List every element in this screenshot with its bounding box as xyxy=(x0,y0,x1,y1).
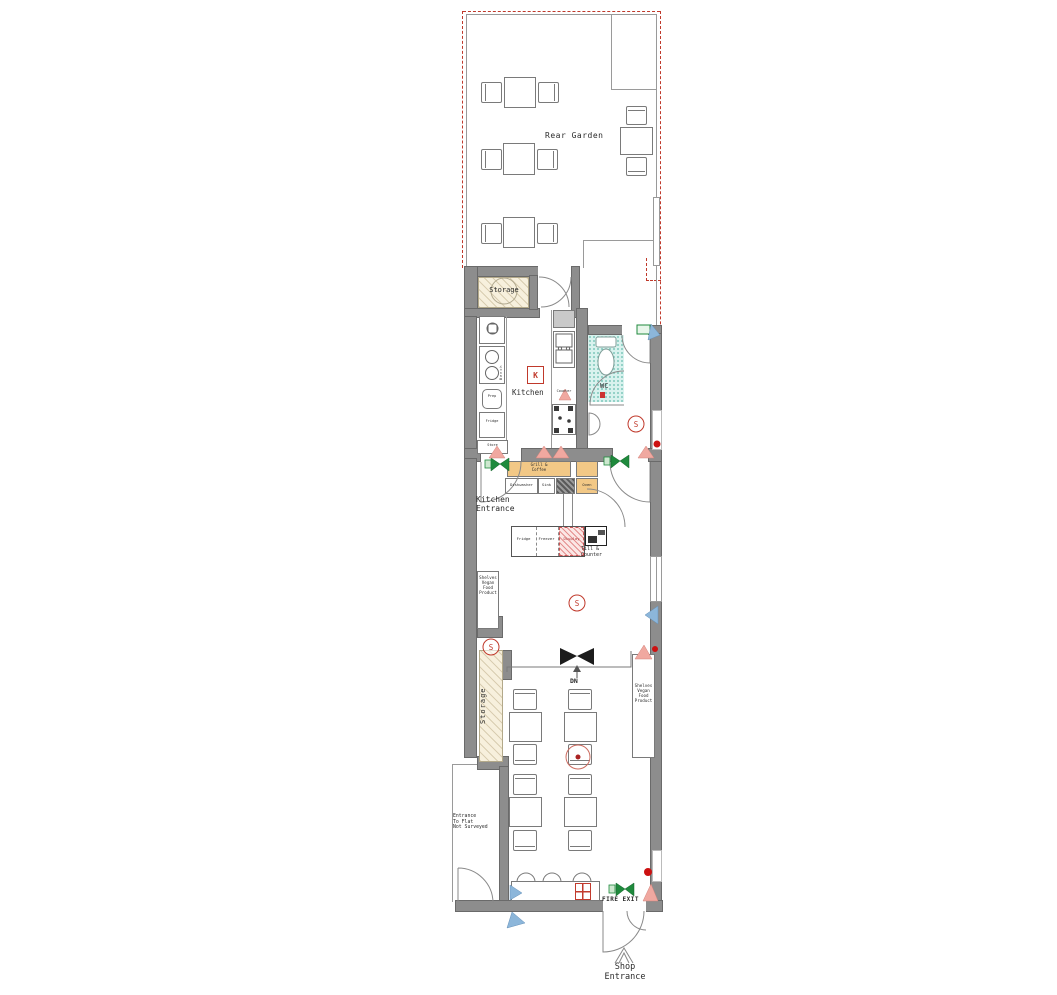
door-opening xyxy=(538,266,571,277)
hob-unit xyxy=(552,404,576,435)
till-counter-label: Till & Counter xyxy=(581,547,602,559)
garden-table xyxy=(503,143,535,175)
garden-chair xyxy=(537,223,558,244)
dining-chair xyxy=(568,689,592,710)
store-label: Store xyxy=(477,443,508,447)
stair-arrow-icon xyxy=(573,665,581,672)
garden-table xyxy=(620,127,653,155)
wall-segment xyxy=(576,308,588,450)
window xyxy=(650,556,662,602)
fire-exit-label: FIRE EXIT xyxy=(602,896,639,903)
cooker-unit xyxy=(479,316,505,344)
site-boundary xyxy=(462,11,463,268)
counter-unit xyxy=(576,461,598,477)
counter-return xyxy=(563,494,573,527)
storage-room-label: Storage xyxy=(479,286,529,294)
garden-chair xyxy=(481,223,502,244)
dining-chair xyxy=(568,774,592,795)
stair-bowtie-icon xyxy=(577,648,594,665)
fridge-unit xyxy=(479,412,505,438)
wc-floor xyxy=(588,335,624,402)
smoke-detector-badge: S xyxy=(569,595,585,611)
wall-segment xyxy=(499,766,509,902)
garden-table xyxy=(504,77,536,108)
smoke-detector-badge: S xyxy=(628,416,644,432)
freezer-label: Freezer xyxy=(536,537,557,541)
dining-chair xyxy=(568,830,592,851)
garden-gate xyxy=(653,197,660,266)
dining-chair xyxy=(513,774,537,795)
wall-recess xyxy=(652,850,662,882)
wall-recess xyxy=(652,410,662,450)
floor-plan: S S S Rear Garden Storage K Kitchen WC K… xyxy=(0,0,1057,995)
garden-chair xyxy=(481,149,502,170)
shed-outline xyxy=(611,89,656,90)
wall-segment xyxy=(521,448,613,462)
bench-label: Bench xyxy=(499,352,507,392)
site-boundary xyxy=(463,11,660,12)
entrance-arrow-icon xyxy=(615,948,633,963)
storage-strip-label: Storage xyxy=(479,650,503,762)
shelves-label: Shelves Vegan Food Product xyxy=(477,576,499,596)
double-sink-unit xyxy=(553,331,575,368)
door-arc-icon xyxy=(539,277,569,307)
dining-table xyxy=(564,797,597,827)
oven-label: Oven xyxy=(577,483,597,487)
door-arc-icon xyxy=(603,911,644,952)
garden-chair xyxy=(626,106,647,125)
prep-unit xyxy=(482,389,502,409)
kitchen-entrance-label: Kitchen Entrance xyxy=(476,495,515,514)
fence-line xyxy=(656,14,657,198)
garden-chair xyxy=(538,82,559,103)
fence-line xyxy=(466,14,467,268)
svg-text:S: S xyxy=(575,599,580,608)
oven-dark-unit xyxy=(556,478,575,494)
prep-label: Prep xyxy=(482,394,502,398)
fence-line xyxy=(466,14,656,15)
flat-wall-line xyxy=(452,764,478,765)
wc-label: WC xyxy=(600,382,608,390)
door-arc-icon xyxy=(622,335,650,363)
wall-segment xyxy=(648,448,662,462)
door-arc-icon xyxy=(541,277,571,307)
fire-point-box-icon xyxy=(609,885,615,893)
display-label: Display xyxy=(559,537,584,541)
dishwasher-label: Dishwasher xyxy=(506,483,537,487)
door-arc-icon xyxy=(587,489,625,527)
fridge-label: Fridge xyxy=(512,537,535,541)
door-arc-icon xyxy=(610,462,650,502)
worktop xyxy=(553,310,575,328)
flat-wall-line xyxy=(452,764,453,902)
counter-divider xyxy=(558,527,559,556)
door-arc-icon xyxy=(627,911,646,930)
door-opening xyxy=(622,325,648,335)
counter-divider xyxy=(536,527,537,556)
door-arc-icon xyxy=(458,868,493,903)
kitchen-label: Kitchen xyxy=(512,389,544,398)
site-boundary xyxy=(646,280,661,281)
fence-line xyxy=(656,266,657,333)
shelves-label: Shelves Vegan Food Product xyxy=(632,684,655,704)
fridge-small-label: Fridge xyxy=(479,419,505,423)
kitchen-tag-letter: K xyxy=(533,371,538,380)
shed-outline xyxy=(611,14,612,90)
dining-table xyxy=(509,712,542,742)
red-grid-icon xyxy=(575,883,591,900)
garden-chair xyxy=(626,157,647,176)
fire-point-icon xyxy=(491,458,500,471)
stairs-dn-label: DN xyxy=(570,678,578,686)
counter-small-label: Counter xyxy=(553,389,575,393)
flat-note-label: Entrance To Flat Not Surveyed xyxy=(453,814,488,831)
garden-step-line xyxy=(583,240,656,241)
dining-chair xyxy=(513,744,537,765)
wall-segment xyxy=(464,316,477,458)
garden-chair xyxy=(537,149,558,170)
dining-chair xyxy=(513,689,537,710)
dining-chair xyxy=(568,744,592,765)
dining-table xyxy=(509,797,542,827)
fire-point-icon xyxy=(625,883,634,896)
basin-icon xyxy=(589,413,600,435)
fire-point-box-icon xyxy=(485,460,491,468)
vent-icon xyxy=(507,912,525,928)
dining-table xyxy=(564,712,597,742)
till-icon xyxy=(588,536,597,543)
rear-garden-label: Rear Garden xyxy=(545,131,603,140)
shelf-unit xyxy=(632,654,655,758)
wall-segment xyxy=(529,275,538,310)
sink-label: Sink xyxy=(538,483,555,487)
garden-step-line xyxy=(583,240,584,268)
dining-chair xyxy=(513,830,537,851)
fire-point-icon xyxy=(620,455,629,468)
garden-table xyxy=(503,217,535,248)
svg-text:S: S xyxy=(634,420,639,429)
till-icon xyxy=(598,530,605,535)
grill-counter-label: Grill & Coffee xyxy=(509,463,569,472)
kitchen-tag: K xyxy=(527,366,544,384)
fire-point-icon xyxy=(616,883,625,896)
site-boundary xyxy=(646,258,647,281)
stair-guard-line xyxy=(507,651,631,672)
stair-bowtie-icon xyxy=(560,648,577,665)
garden-chair xyxy=(481,82,502,103)
shop-entrance-label: Shop Entrance xyxy=(598,962,652,982)
